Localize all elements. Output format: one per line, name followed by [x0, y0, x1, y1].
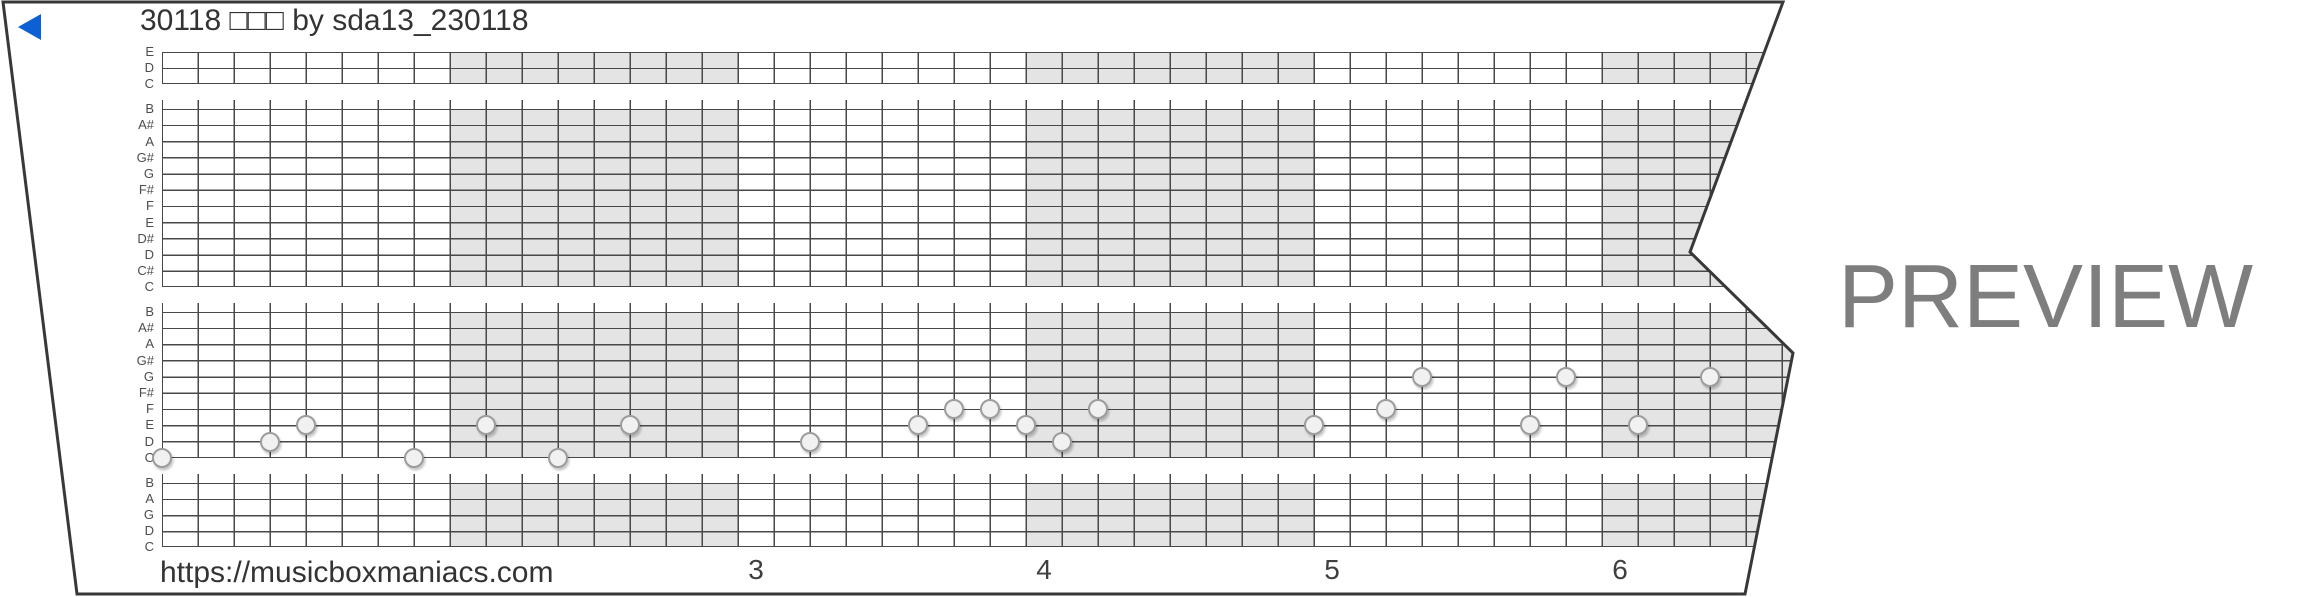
- pitch-label-29: D: [40, 523, 154, 539]
- pitch-label-27: A: [40, 491, 154, 507]
- pitch-label-28: G: [40, 507, 154, 523]
- pitch-label-4: B: [40, 101, 154, 117]
- pitch-label-2: D: [40, 60, 154, 76]
- measure-number-3: 3: [726, 554, 786, 586]
- pitch-label-20: G: [40, 369, 154, 385]
- pitch-label-10: F: [40, 198, 154, 214]
- pitch-label-14: C#: [40, 263, 154, 279]
- note-G-t39[interactable]: [1556, 367, 1576, 387]
- measure-number-4: 4: [1014, 554, 1074, 586]
- pitch-label-23: E: [40, 417, 154, 433]
- grid-lines: [162, 109, 1818, 287]
- pitch-label-1: E: [40, 44, 154, 60]
- pitch-label-26: B: [40, 475, 154, 491]
- pitch-label-6: A: [40, 134, 154, 150]
- pitch-label-22: F: [40, 401, 154, 417]
- separator-ticks: [162, 303, 1818, 312]
- pitch-label-12: D#: [40, 231, 154, 247]
- note-C-t7[interactable]: [404, 448, 424, 468]
- note-G-t35[interactable]: [1412, 367, 1432, 387]
- site-url: https://musicboxmaniacs.com: [160, 556, 553, 590]
- pitch-label-3: C: [40, 76, 154, 92]
- note-C-t0[interactable]: [152, 448, 172, 468]
- pitch-label-11: E: [40, 215, 154, 231]
- grid-section-4: [162, 483, 1818, 548]
- music-strip-preview-card: 30118 □□□ by sda13_230118 EDCBA#AG#GF#FE…: [0, 0, 2310, 597]
- pitch-label-9: F#: [40, 182, 154, 198]
- grid-lines: [162, 483, 1818, 548]
- note-D-t18[interactable]: [800, 432, 820, 452]
- pitch-label-30: C: [40, 539, 154, 555]
- pitch-label-15: C: [40, 279, 154, 295]
- grid-section-2: [162, 109, 1818, 287]
- note-G-t43[interactable]: [1700, 367, 1720, 387]
- pitch-label-16: B: [40, 304, 154, 320]
- measure-number-6: 6: [1590, 554, 1650, 586]
- melody-title: 30118 □□□ by sda13_230118: [140, 4, 529, 38]
- grid-lines: [162, 52, 1818, 84]
- note-D-t25[interactable]: [1052, 432, 1072, 452]
- pitch-label-5: A#: [40, 117, 154, 133]
- pitch-label-7: G#: [40, 150, 154, 166]
- pitch-label-18: A: [40, 336, 154, 352]
- preview-watermark: PREVIEW: [1838, 246, 2253, 349]
- measure-number-5: 5: [1302, 554, 1362, 586]
- pitch-label-17: A#: [40, 320, 154, 336]
- separator-ticks: [162, 474, 1818, 483]
- note-C-t11[interactable]: [548, 448, 568, 468]
- pitch-label-21: F#: [40, 385, 154, 401]
- play-icon[interactable]: [18, 14, 41, 40]
- separator-ticks: [162, 100, 1818, 109]
- pitch-label-19: G#: [40, 353, 154, 369]
- pitch-label-25: C: [40, 450, 154, 466]
- pitch-label-8: G: [40, 166, 154, 182]
- pitch-label-24: D: [40, 434, 154, 450]
- pitch-label-13: D: [40, 247, 154, 263]
- note-D-t3[interactable]: [260, 432, 280, 452]
- grid-section-1: [162, 52, 1818, 84]
